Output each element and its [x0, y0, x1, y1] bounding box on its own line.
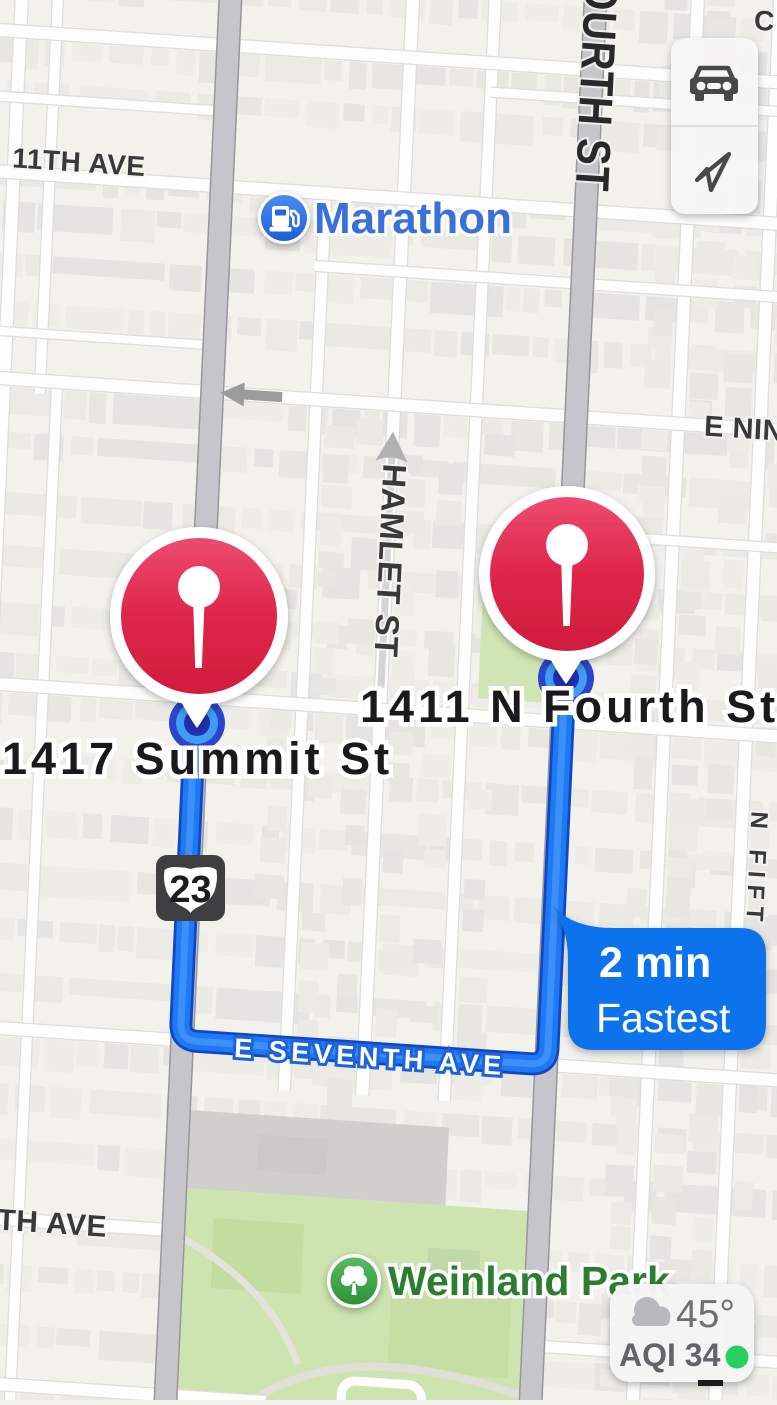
svg-text:1417 Summit St: 1417 Summit St — [2, 733, 393, 784]
svg-text:N FIFT: N FIFT — [740, 810, 772, 928]
svg-text:23: 23 — [169, 869, 211, 911]
svg-text:C: C — [753, 5, 775, 37]
svg-text:1411 N Fourth St: 1411 N Fourth St — [360, 681, 777, 732]
svg-text:Fastest: Fastest — [596, 995, 731, 1041]
svg-text:OURTH ST: OURTH ST — [565, 0, 628, 193]
svg-text:2 min: 2 min — [599, 939, 711, 987]
svg-text:45°: 45° — [676, 1293, 735, 1336]
svg-text:AQI 34: AQI 34 — [619, 1337, 721, 1373]
svg-text:E NIN: E NIN — [703, 411, 777, 448]
svg-text:Marathon: Marathon — [314, 194, 512, 243]
